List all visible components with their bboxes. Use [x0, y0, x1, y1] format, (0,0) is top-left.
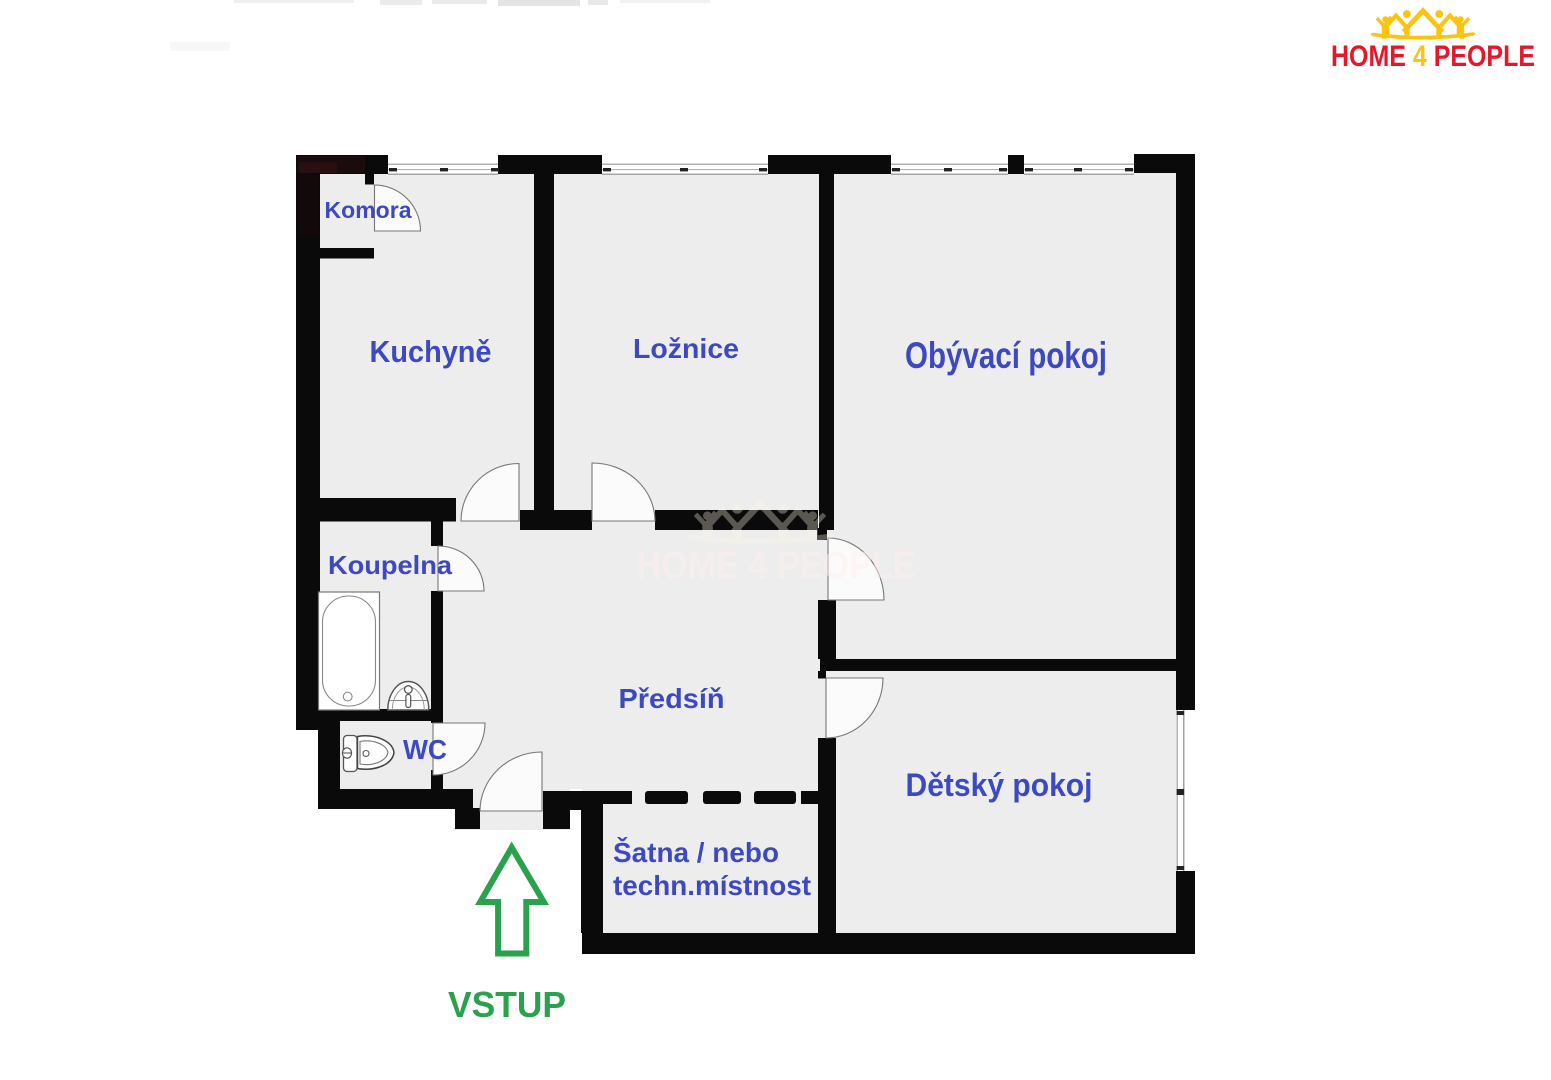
svg-text:Obývací pokoj: Obývací pokoj	[905, 335, 1107, 376]
svg-text:VSTUP: VSTUP	[448, 984, 566, 1025]
svg-text:Šatna / nebo: Šatna / nebo	[613, 836, 779, 868]
svg-text:WC: WC	[403, 734, 447, 765]
svg-text:Koupelna: Koupelna	[328, 550, 453, 580]
svg-text:HOME 4 PEOPLE: HOME 4 PEOPLE	[637, 545, 916, 587]
svg-text:techn.místnost: techn.místnost	[613, 870, 811, 901]
svg-text:Předsíň: Předsíň	[619, 683, 725, 714]
svg-text:HOME 4 PEOPLE: HOME 4 PEOPLE	[1331, 40, 1535, 73]
svg-text:Kuchyně: Kuchyně	[370, 335, 492, 369]
svg-text:Komora: Komora	[325, 197, 413, 223]
svg-text:Ložnice: Ložnice	[633, 333, 739, 364]
svg-text:Dětský pokoj: Dětský pokoj	[906, 767, 1093, 803]
